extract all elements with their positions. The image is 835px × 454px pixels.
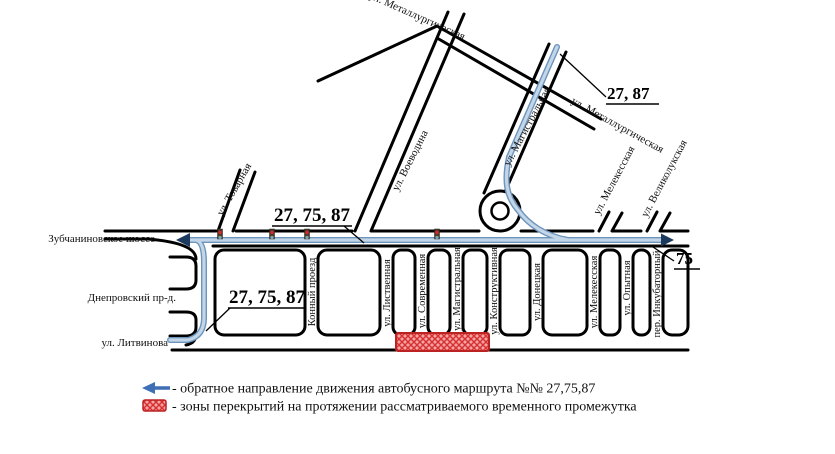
street-label-melekesskaya-north: ул. Мелекесская xyxy=(591,144,637,217)
legend-closure-zone-icon xyxy=(143,400,166,411)
street-label-konstruktivnaya: ул. Конструктивная xyxy=(489,247,500,335)
street-label-sovremennaya: ул. Современная xyxy=(417,254,428,329)
block-9 xyxy=(633,250,650,335)
street-label-inkubatorny: пер. Инкубаторный xyxy=(652,250,663,337)
route-label-north: 27, 87 xyxy=(607,84,650,103)
block-6 xyxy=(500,250,530,335)
block-west-lower xyxy=(170,312,196,336)
roundabout-inner-circle xyxy=(492,203,509,220)
street-label-konny-proezd: Конный проезд xyxy=(307,257,318,326)
block-8 xyxy=(600,250,620,335)
traffic-light-icon xyxy=(435,229,440,239)
legend-reverse-direction-label: - обратное направление движения автобусн… xyxy=(172,382,595,397)
legend-arrow-icon xyxy=(142,382,155,394)
block-7 xyxy=(543,250,587,335)
traffic-light-icon xyxy=(305,229,310,239)
traffic-light-icon xyxy=(218,229,223,239)
road-voevodina-left xyxy=(355,12,448,231)
route-label-west: 27, 75, 87 xyxy=(229,287,306,308)
closure-zone xyxy=(396,333,489,351)
block-3 xyxy=(393,250,415,335)
route-map-canvas: 27, 75, 87 27, 75, 87 27, 87 75 Зубчанин… xyxy=(0,0,835,454)
leader-north xyxy=(560,54,606,97)
legend-closure-zone-label: - зоны перекрытий на протяжении рассматр… xyxy=(172,400,637,415)
street-label-velikolukskaya: ул. Великолукская xyxy=(639,138,690,219)
street-label-dneprovsky: Днепровский пр-д. xyxy=(88,292,177,304)
street-label-magistralnaya-south: ул. Магистральная xyxy=(452,247,463,331)
block-2 xyxy=(318,250,380,335)
street-label-shosse: Зубчаниновское шоссе xyxy=(48,233,155,245)
street-label-melekesskaya-south: ул. Мелекесская xyxy=(589,256,600,329)
route-map-page: 27, 75, 87 27, 75, 87 27, 87 75 Зубчанин… xyxy=(0,0,835,454)
route-label-east: 75 xyxy=(676,249,693,268)
traffic-light-icon xyxy=(270,229,275,239)
street-label-litvinova: ул. Литвинова xyxy=(101,337,168,349)
street-label-listvennaya: ул. Лиственная xyxy=(382,259,393,327)
legend: - обратное направление движения автобусн… xyxy=(142,382,637,415)
block-west-upper xyxy=(170,257,196,289)
street-label-magistralnaya-diag: ул. Магистральная xyxy=(501,85,553,168)
street-label-opytnaya: ул. Опытная xyxy=(622,260,633,315)
block-5 xyxy=(463,250,487,335)
road-magistralnaya-left xyxy=(484,44,549,193)
route-label-junction: 27, 75, 87 xyxy=(274,205,351,226)
block-4 xyxy=(428,250,450,335)
street-label-donetskaya: ул. Донецкая xyxy=(532,263,543,321)
road-metallurgicheskaya-parallel xyxy=(437,38,594,129)
